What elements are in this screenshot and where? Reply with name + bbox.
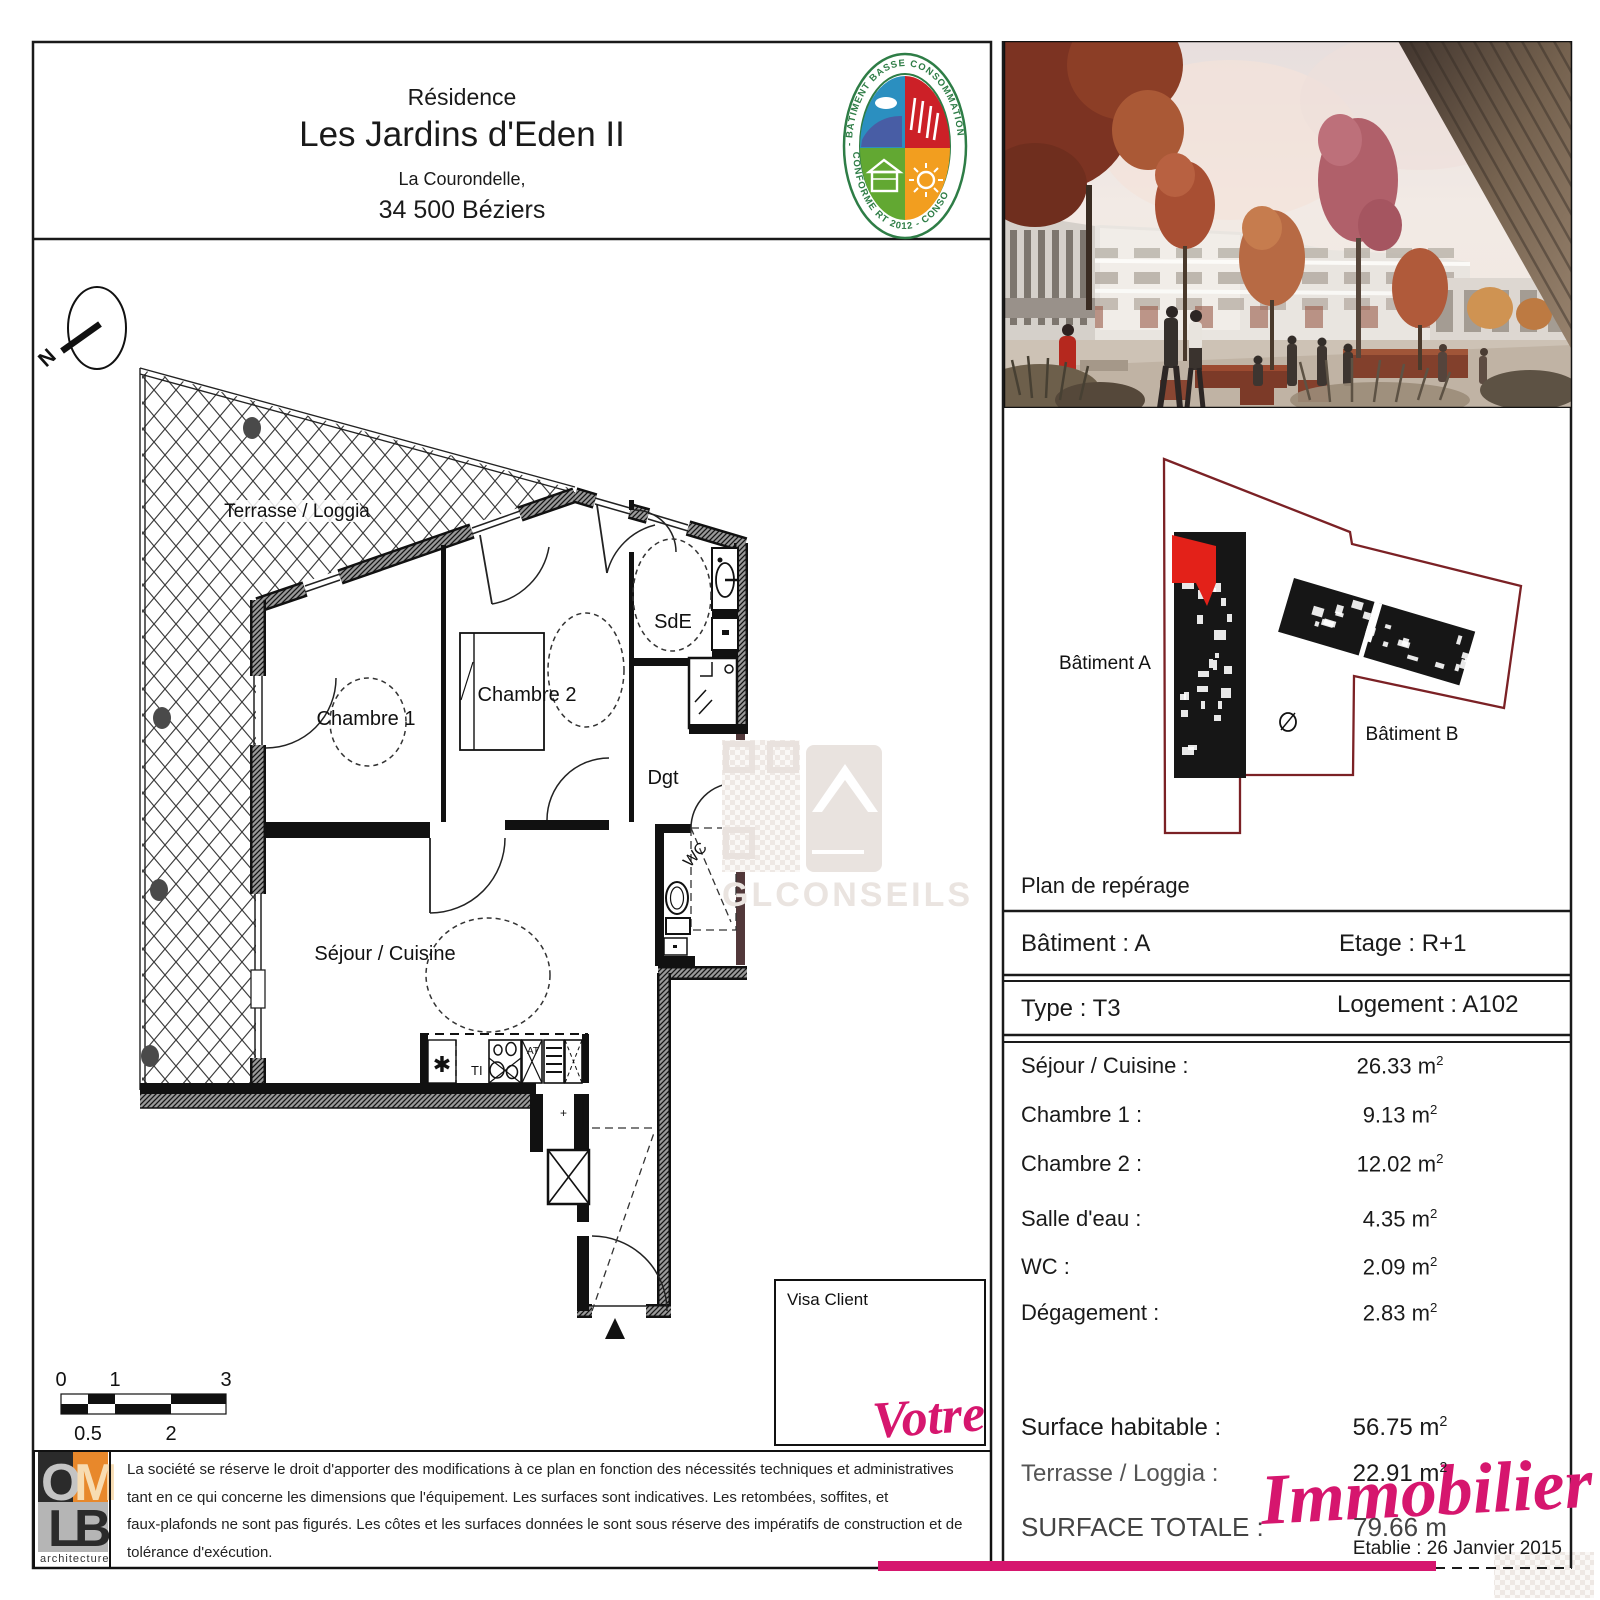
svg-text:TI: TI — [471, 1063, 483, 1078]
svg-text:Bâtiment B: Bâtiment B — [1366, 724, 1459, 745]
svg-text:Chambre 2: Chambre 2 — [478, 684, 577, 706]
svg-text:architecture: architecture — [40, 1553, 109, 1565]
svg-text:+: + — [560, 1106, 567, 1120]
svg-text:SdE: SdE — [654, 611, 692, 633]
svg-text:GLCONSEILS: GLCONSEILS — [722, 876, 973, 914]
svg-text:Séjour / Cuisine: Séjour / Cuisine — [314, 943, 455, 965]
svg-text:0.5: 0.5 — [74, 1423, 102, 1445]
svg-text:Terrasse / Loggia: Terrasse / Loggia — [224, 501, 370, 522]
svg-text:Bâtiment A: Bâtiment A — [1059, 653, 1151, 674]
svg-text:AT: AT — [527, 1046, 539, 1057]
svg-text:Visa Client: Visa Client — [787, 1290, 868, 1309]
svg-text:N: N — [34, 344, 61, 371]
svg-text:WC: WC — [680, 839, 710, 870]
svg-text:3: 3 — [220, 1369, 231, 1391]
svg-text:Chambre 1: Chambre 1 — [317, 708, 416, 730]
svg-text:1: 1 — [109, 1369, 120, 1391]
svg-text:B: B — [74, 1500, 112, 1558]
svg-text:✱: ✱ — [433, 1052, 451, 1077]
svg-text:Votre: Votre — [871, 1385, 987, 1450]
svg-text:Dgt: Dgt — [647, 767, 679, 789]
svg-text:2: 2 — [165, 1423, 176, 1445]
svg-text:0: 0 — [55, 1369, 66, 1391]
